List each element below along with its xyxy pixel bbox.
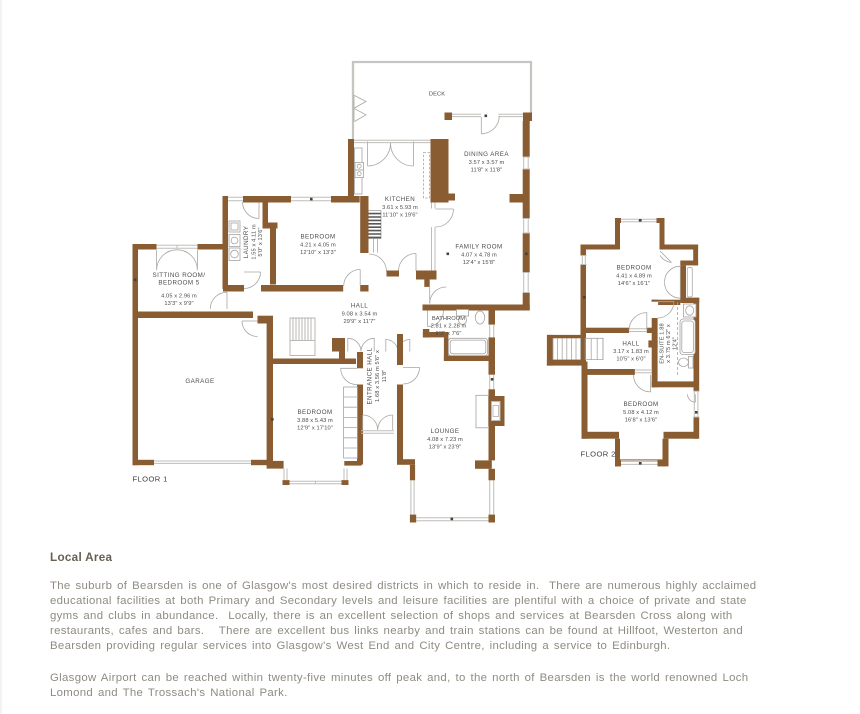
svg-text:11'8" x 11'8": 11'8" x 11'8" — [471, 168, 503, 174]
svg-text:KITCHEN: KITCHEN — [385, 196, 415, 203]
svg-text:3.61 x 5.93 m: 3.61 x 5.93 m — [382, 205, 418, 211]
svg-text:LOUNGE: LOUNGE — [431, 428, 460, 435]
svg-text:BEDROOM 5: BEDROOM 5 — [158, 280, 199, 287]
svg-text:5'0" x 13'6": 5'0" x 13'6" — [258, 227, 264, 256]
svg-text:4.41 x 4.89 m: 4.41 x 4.89 m — [616, 274, 652, 280]
svg-text:13'3" x 9'9": 13'3" x 9'9" — [164, 301, 193, 307]
svg-text:29'9" x 11'7": 29'9" x 11'7" — [343, 319, 375, 325]
svg-text:1.68 x 3.56 m 5'6" x: 1.68 x 3.56 m 5'6" x — [375, 350, 381, 402]
svg-text:3.57 x 3.57 m: 3.57 x 3.57 m — [469, 160, 505, 166]
svg-text:SITTING ROOM/: SITTING ROOM/ — [153, 272, 206, 279]
svg-text:5.08 x 4.12 m: 5.08 x 4.12 m — [623, 410, 659, 416]
svg-text:10'5" x 6'0": 10'5" x 6'0" — [616, 357, 645, 363]
svg-text:FLOOR 1: FLOOR 1 — [133, 475, 168, 484]
svg-text:DINING AREA: DINING AREA — [464, 151, 509, 158]
svg-text:4.07 x 4.78 m: 4.07 x 4.78 m — [461, 253, 497, 259]
svg-text:3.88 x 5.43 m: 3.88 x 5.43 m — [297, 418, 333, 424]
svg-text:BATHROOM: BATHROOM — [432, 316, 465, 322]
svg-text:FLOOR 2: FLOOR 2 — [581, 450, 616, 459]
svg-text:FAMILY ROOM: FAMILY ROOM — [455, 244, 502, 251]
svg-text:9'3" x 7'6": 9'3" x 7'6" — [436, 331, 462, 337]
svg-text:4.08 x 7.23 m: 4.08 x 7.23 m — [427, 437, 463, 443]
svg-text:BEDROOM: BEDROOM — [616, 265, 651, 272]
svg-text:DECK: DECK — [429, 92, 445, 98]
svg-text:12'9" x 17'10": 12'9" x 17'10" — [297, 426, 333, 432]
svg-text:16'8" x 13'6": 16'8" x 13'6" — [625, 418, 658, 424]
svg-text:11'8": 11'8" — [382, 370, 388, 383]
svg-text:ENTRANCE HALL: ENTRANCE HALL — [367, 347, 374, 404]
svg-text:BEDROOM: BEDROOM — [297, 409, 332, 416]
svg-text:2.81 x 2.28 m: 2.81 x 2.28 m — [431, 324, 467, 330]
svg-text:12'4": 12'4" — [673, 337, 679, 350]
svg-text:HALL: HALL — [622, 341, 639, 348]
svg-text:4.21 x 4.05 m: 4.21 x 4.05 m — [300, 243, 336, 249]
svg-text:EN-SUITE 1.88: EN-SUITE 1.88 — [660, 323, 666, 364]
svg-text:14'6" x 16'1": 14'6" x 16'1" — [618, 281, 651, 287]
svg-text:11'10" x 19'6": 11'10" x 19'6" — [382, 213, 417, 219]
svg-text:12'10" x 13'3": 12'10" x 13'3" — [300, 250, 336, 256]
svg-text:12'4" x 15'8": 12'4" x 15'8" — [463, 260, 496, 266]
svg-text:BEDROOM: BEDROOM — [623, 401, 658, 408]
svg-text:BEDROOM: BEDROOM — [300, 234, 335, 241]
svg-text:1.55 x 4.11 m: 1.55 x 4.11 m — [252, 224, 258, 260]
svg-text:4.05 x 2.96 m: 4.05 x 2.96 m — [161, 294, 197, 300]
svg-text:3.17 x 1.83 m: 3.17 x 1.83 m — [613, 349, 649, 355]
svg-text:HALL: HALL — [351, 303, 368, 310]
svg-text:9.08 x 3.54 m: 9.08 x 3.54 m — [342, 312, 378, 318]
svg-text:LAUNDRY: LAUNDRY — [243, 226, 250, 259]
svg-text:x 3.75 m 6'2" x: x 3.75 m 6'2" x — [666, 324, 672, 363]
svg-text:13'9" x 23'9": 13'9" x 23'9" — [429, 445, 462, 451]
svg-text:GARAGE: GARAGE — [185, 378, 214, 385]
